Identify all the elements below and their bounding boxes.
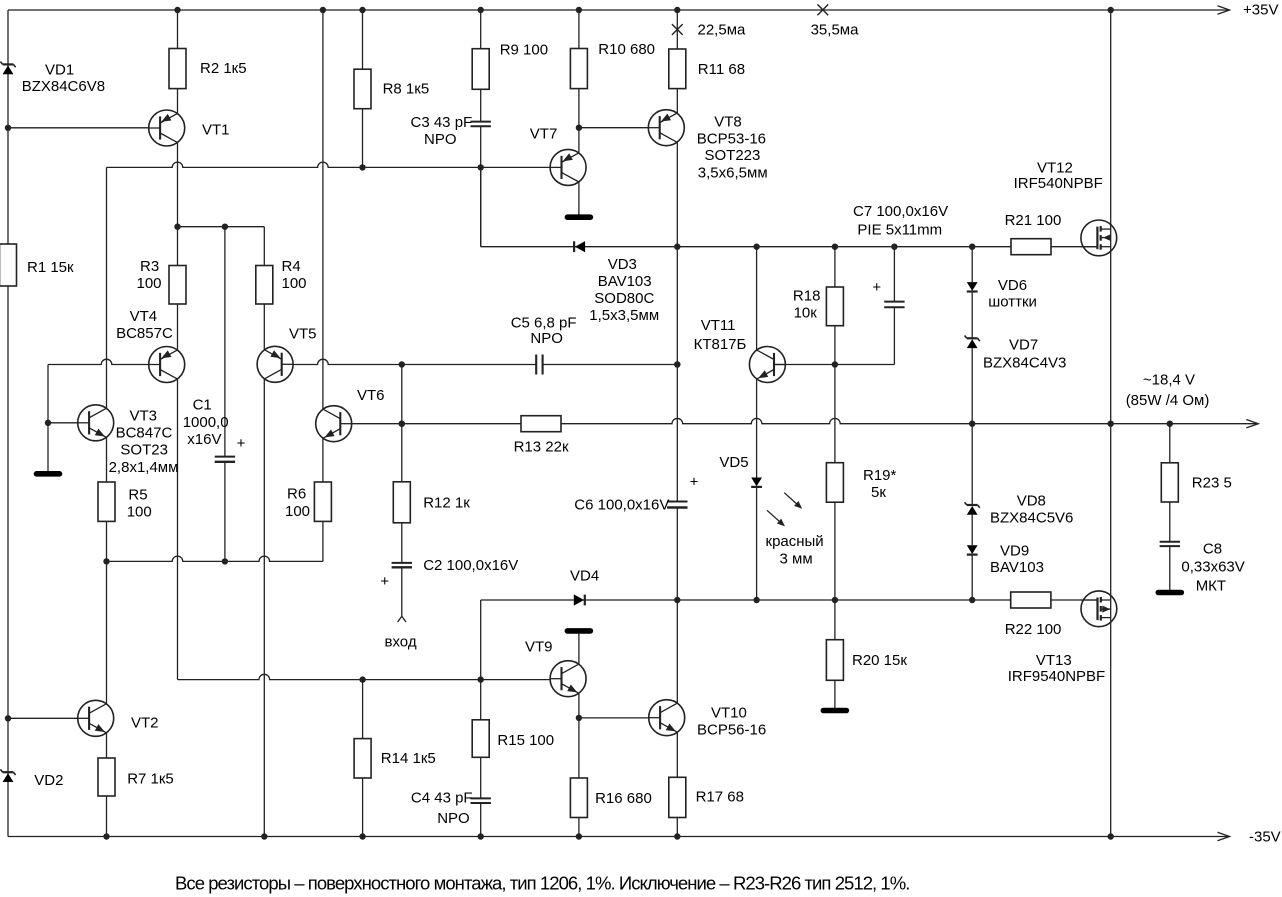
svg-text:100: 100 [282, 275, 307, 292]
svg-text:NPO: NPO [530, 330, 563, 347]
svg-text:R22 100: R22 100 [1005, 621, 1062, 638]
svg-text:VT13: VT13 [1036, 652, 1072, 669]
svg-text:C3 43 pF: C3 43 pF [411, 114, 473, 131]
svg-text:1,5х3,5мм: 1,5х3,5мм [589, 307, 659, 324]
svg-text:R10 680: R10 680 [598, 41, 655, 58]
svg-text:BC857C: BC857C [116, 325, 173, 342]
svg-text:x16V: x16V [187, 431, 221, 448]
svg-text:+: + [872, 279, 881, 296]
svg-text:C4 43 pF: C4 43 pF [411, 790, 473, 807]
svg-text:КТ817Б: КТ817Б [694, 336, 747, 353]
svg-text:VT9: VT9 [525, 639, 553, 656]
svg-text:R23 5: R23 5 [1192, 475, 1232, 492]
svg-text:C7 100,0x16V: C7 100,0x16V [853, 203, 948, 220]
svg-text:+: + [380, 573, 389, 590]
svg-text:R17 68: R17 68 [696, 788, 744, 805]
svg-text:R19*: R19* [863, 467, 897, 484]
svg-text:VT4: VT4 [130, 308, 158, 325]
svg-text:100: 100 [127, 504, 152, 521]
svg-text:VT5: VT5 [289, 326, 317, 343]
svg-text:шоттки: шоттки [988, 293, 1037, 310]
svg-text:1000,0: 1000,0 [183, 414, 229, 431]
svg-text:VT8: VT8 [714, 114, 742, 131]
svg-text:-35V: -35V [1249, 829, 1281, 846]
svg-text:3,5х6,5мм: 3,5х6,5мм [698, 165, 768, 182]
svg-text:R11 68: R11 68 [698, 61, 745, 78]
svg-text:VT10: VT10 [711, 705, 747, 722]
svg-text:C5 6,8 pF: C5 6,8 pF [511, 314, 577, 331]
svg-text:(85W /4 Ом): (85W /4 Ом) [1126, 392, 1210, 409]
svg-text:МКТ: МКТ [1196, 578, 1226, 595]
svg-text:R1 15к: R1 15к [27, 259, 74, 276]
svg-text:BZX84C4V3: BZX84C4V3 [983, 355, 1066, 372]
svg-text:~18,4 V: ~18,4 V [1143, 372, 1195, 389]
svg-text:R15 100: R15 100 [497, 732, 554, 749]
svg-text:100: 100 [285, 503, 310, 520]
svg-text:VD2: VD2 [34, 772, 63, 789]
svg-text:C2 100,0x16V: C2 100,0x16V [423, 557, 518, 574]
svg-text:R18: R18 [793, 288, 821, 305]
svg-text:3 мм: 3 мм [780, 550, 813, 567]
svg-text:+: + [237, 435, 246, 452]
svg-text:R3: R3 [140, 258, 159, 275]
svg-text:VT2: VT2 [131, 715, 159, 732]
svg-text:SOT223: SOT223 [705, 147, 761, 164]
svg-text:SOD80C: SOD80C [594, 290, 654, 307]
svg-text:BZX84C6V8: BZX84C6V8 [22, 78, 105, 95]
svg-text:100: 100 [137, 275, 162, 292]
svg-text:BCP56-16: BCP56-16 [697, 722, 766, 739]
svg-text:0,33x63V: 0,33x63V [1181, 559, 1244, 576]
svg-text:R7 1к5: R7 1к5 [127, 771, 174, 788]
svg-text:R6: R6 [287, 486, 306, 503]
svg-text:VT11: VT11 [701, 317, 736, 334]
svg-text:IRF9540NPBF: IRF9540NPBF [1008, 668, 1106, 685]
svg-text:VD7: VD7 [1009, 337, 1038, 354]
svg-text:VD5: VD5 [719, 454, 748, 471]
svg-text:VT3: VT3 [130, 408, 158, 425]
svg-text:красный: красный [766, 533, 824, 550]
svg-text:VD9: VD9 [1000, 543, 1029, 560]
svg-text:R20 15к: R20 15к [852, 652, 907, 669]
svg-text:BAV103: BAV103 [598, 273, 652, 290]
svg-text:VT1: VT1 [202, 122, 230, 139]
svg-text:R8 1к5: R8 1к5 [383, 80, 430, 97]
svg-text:R12 1к: R12 1к [423, 495, 470, 512]
svg-text:R14 1к5: R14 1к5 [381, 750, 436, 767]
svg-text:BZX84C5V6: BZX84C5V6 [990, 510, 1073, 527]
svg-text:вход: вход [385, 634, 417, 651]
svg-text:C8: C8 [1203, 540, 1222, 557]
svg-text:R13 22к: R13 22к [514, 439, 569, 456]
svg-text:C1: C1 [193, 397, 212, 414]
svg-text:35,5ма: 35,5ма [811, 22, 860, 39]
svg-text:R16 680: R16 680 [595, 790, 652, 807]
svg-text:R21 100: R21 100 [1005, 212, 1062, 229]
svg-text:NPO: NPO [437, 810, 470, 827]
svg-text:VD4: VD4 [570, 568, 599, 585]
svg-text:VD8: VD8 [1017, 493, 1046, 510]
svg-text:5к: 5к [871, 484, 886, 501]
svg-text:+35V: +35V [1243, 2, 1278, 19]
svg-text:2,8х1,4мм: 2,8х1,4мм [109, 459, 179, 476]
svg-text:R9 100: R9 100 [500, 42, 548, 59]
svg-text:R5: R5 [128, 487, 147, 504]
svg-text:Все резисторы – поверхностного: Все резисторы – поверхностного монтажа, … [175, 873, 909, 894]
svg-text:SOT23: SOT23 [120, 441, 168, 458]
svg-text:VD6: VD6 [998, 277, 1027, 294]
svg-text:VD3: VD3 [608, 256, 637, 273]
svg-text:10к: 10к [794, 305, 818, 322]
svg-text:BCP53-16: BCP53-16 [697, 130, 766, 147]
svg-text:VT6: VT6 [357, 387, 385, 404]
svg-text:PIE 5x11mm: PIE 5x11mm [857, 222, 942, 239]
svg-text:R4: R4 [282, 258, 301, 275]
svg-text:+: + [690, 474, 699, 491]
svg-text:NPO: NPO [424, 131, 457, 148]
svg-text:R2 1к5: R2 1к5 [200, 60, 247, 77]
svg-text:IRF540NPBF: IRF540NPBF [1014, 175, 1103, 192]
svg-text:C6 100,0x16V: C6 100,0x16V [574, 497, 669, 514]
svg-text:BC847C: BC847C [116, 425, 173, 442]
svg-text:22,5ма: 22,5ма [698, 22, 747, 39]
svg-text:VT7: VT7 [530, 126, 558, 143]
svg-text:VD1: VD1 [45, 62, 74, 79]
svg-text:BAV103: BAV103 [990, 559, 1044, 576]
